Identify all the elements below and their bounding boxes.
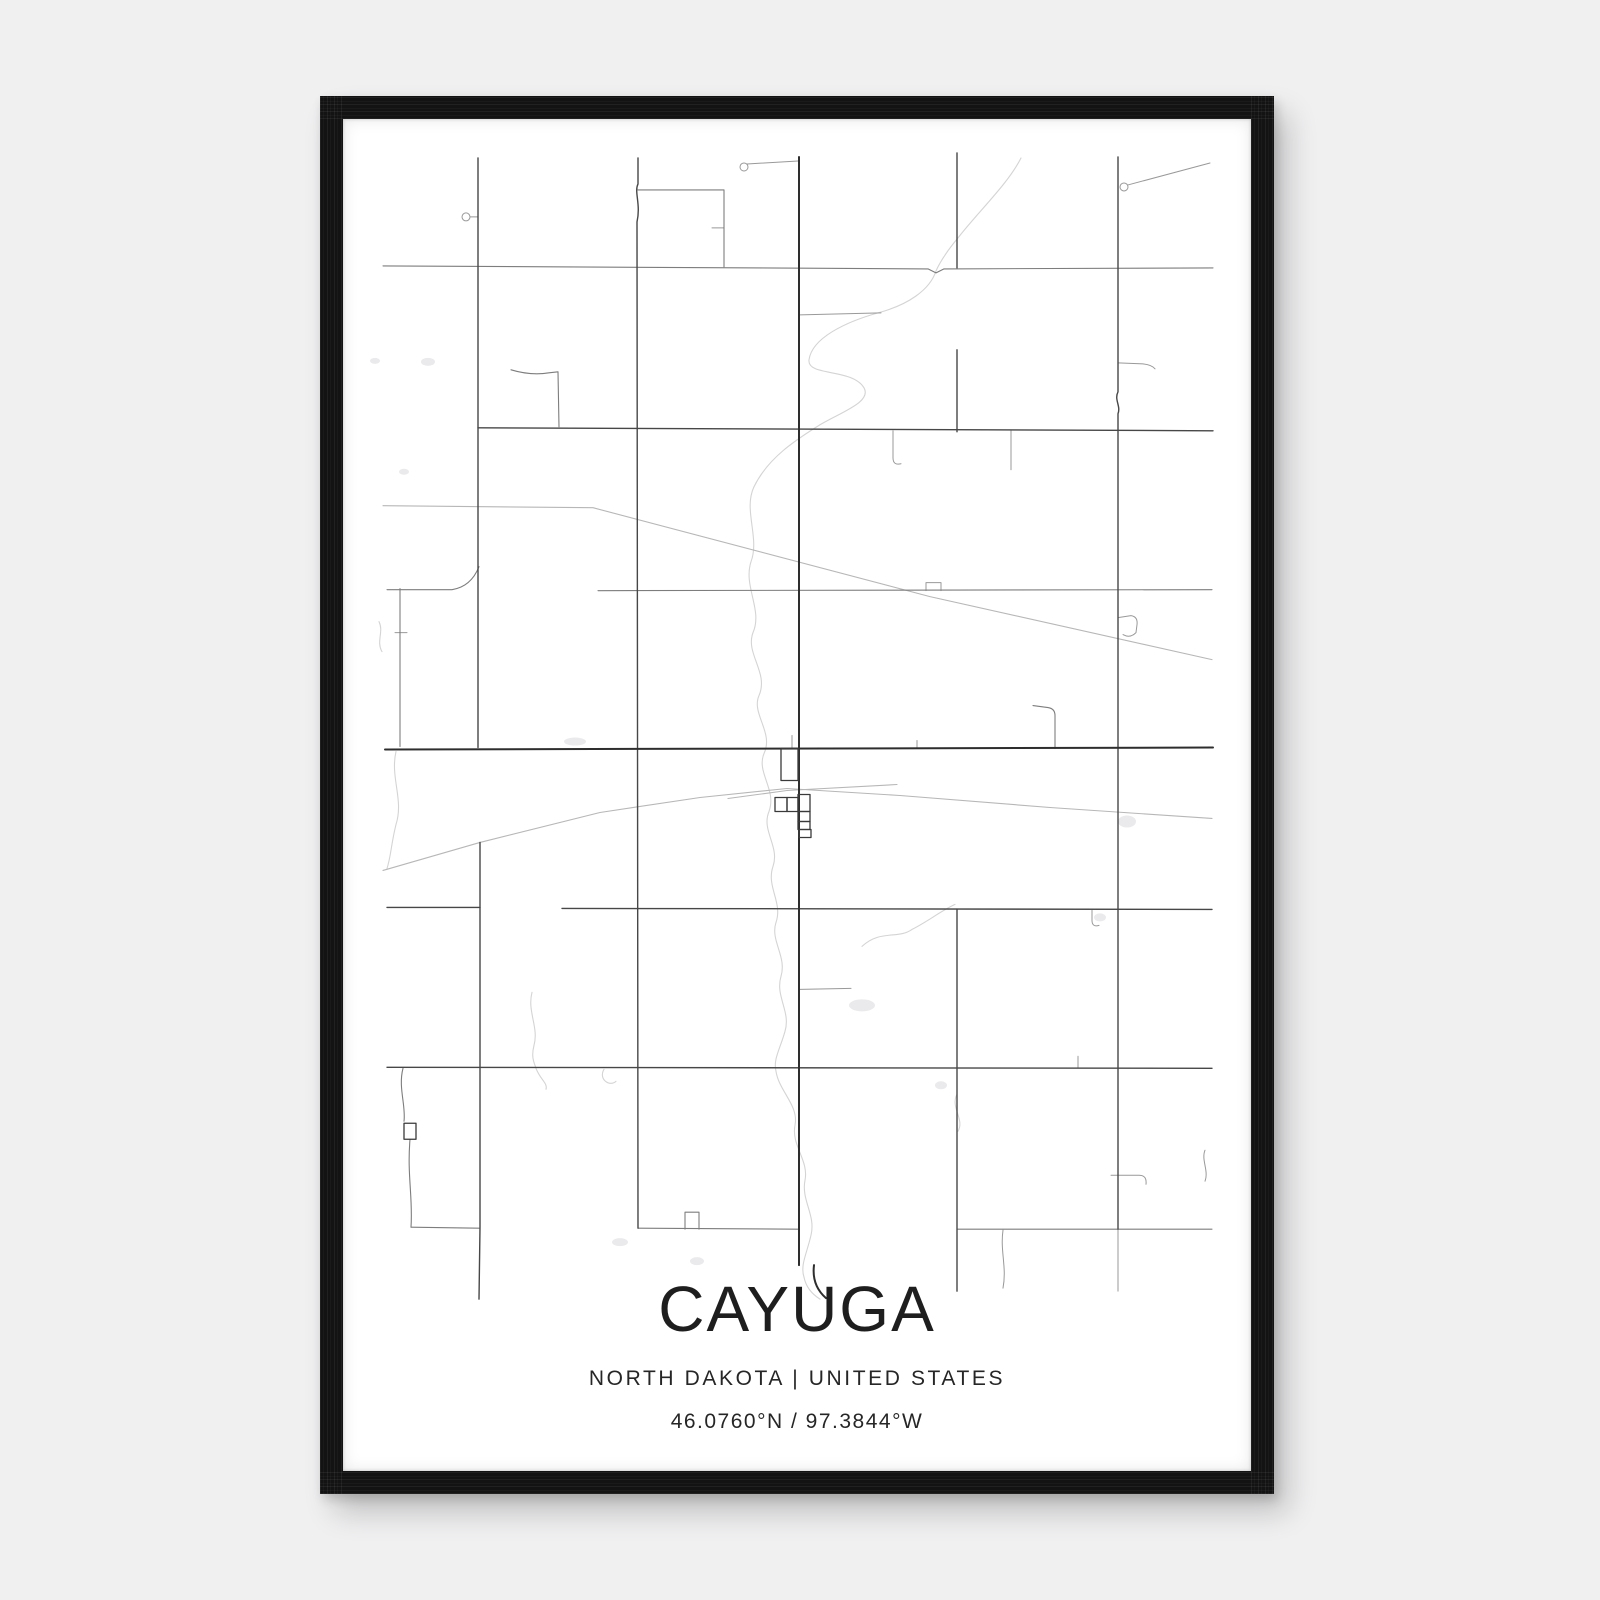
town-blocks (404, 749, 811, 1140)
map-graphic (343, 119, 1251, 1471)
roads-major (385, 157, 1213, 1298)
frame-grain-top (320, 96, 1274, 119)
frame-grain-left (320, 96, 343, 1494)
water-ponds (370, 358, 1136, 1265)
roads-minor (395, 161, 1210, 1291)
page-background: { "poster": { "title": "CAYUGA", "subtit… (0, 0, 1600, 1600)
poster-frame: CAYUGA NORTH DAKOTA | UNITED STATES 46.0… (320, 96, 1274, 1494)
poster-coordinates: 46.0760°N / 97.3844°W (343, 1410, 1251, 1434)
frame-grain-right (1251, 96, 1274, 1494)
streams (379, 158, 1021, 1299)
poster-subtitle: NORTH DAKOTA | UNITED STATES (343, 1367, 1251, 1391)
frame-grain-bottom (320, 1471, 1274, 1494)
poster-paper: CAYUGA NORTH DAKOTA | UNITED STATES 46.0… (343, 119, 1251, 1471)
poster-title: CAYUGA (343, 1275, 1251, 1343)
